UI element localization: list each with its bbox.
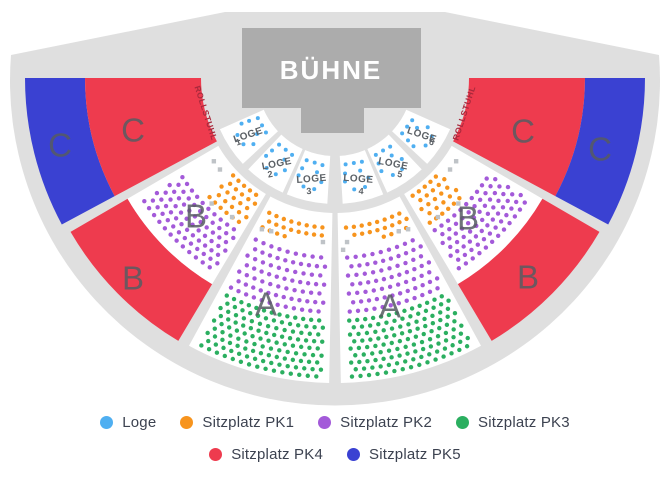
loge-seat-dot[interactable] bbox=[300, 166, 304, 170]
section-label-c-inner-left: C bbox=[121, 112, 145, 149]
legend-item-loge: Loge bbox=[100, 414, 156, 431]
loge-seat-dot[interactable] bbox=[305, 158, 309, 162]
section-label-b-red-right: B bbox=[517, 259, 539, 296]
legend-row-1: Loge Sitzplatz PK1 Sitzplatz PK2 Sitzpla… bbox=[100, 414, 570, 431]
loge-seat-dot[interactable] bbox=[381, 149, 385, 153]
loge-seat-dot[interactable] bbox=[352, 187, 356, 191]
loge-seat-dot[interactable] bbox=[251, 142, 255, 146]
loge-seat-dot[interactable] bbox=[284, 148, 288, 152]
legend: Loge Sitzplatz PK1 Sitzplatz PK2 Sitzpla… bbox=[0, 414, 670, 463]
loge-seat-dot[interactable] bbox=[320, 163, 324, 167]
legend-label: Sitzplatz PK1 bbox=[202, 414, 294, 431]
loge-seat-dot[interactable] bbox=[256, 116, 260, 120]
loge-seat-dot[interactable] bbox=[312, 187, 316, 191]
loge-seat-dot[interactable] bbox=[379, 169, 383, 173]
loge-seat-dot[interactable] bbox=[274, 172, 278, 176]
legend-label: Sitzplatz PK2 bbox=[340, 414, 432, 431]
loge-seat-dot[interactable] bbox=[240, 122, 244, 126]
loge-seat-dot[interactable] bbox=[247, 119, 251, 123]
loge-color-dot bbox=[100, 416, 113, 429]
loge-seat-dot[interactable] bbox=[410, 118, 414, 122]
section-label-b-seats-right: B bbox=[457, 200, 479, 237]
loge-seat-dot[interactable] bbox=[264, 154, 268, 158]
legend-label: Loge bbox=[122, 414, 156, 431]
loge-seat-dot[interactable] bbox=[358, 169, 362, 173]
section-label-c-outer-right: C bbox=[588, 131, 612, 168]
loge-seat-dot[interactable] bbox=[390, 153, 394, 157]
pk5-color-dot bbox=[347, 448, 360, 461]
pk1-color-dot bbox=[180, 416, 193, 429]
loge-number: 3 bbox=[306, 186, 312, 196]
section-label-a-left: A bbox=[255, 286, 277, 323]
loge-seat-dot[interactable] bbox=[283, 168, 287, 172]
loge-seat-dot[interactable] bbox=[374, 153, 378, 157]
loge-seat-dot[interactable] bbox=[313, 161, 317, 165]
pk3-color-dot bbox=[456, 416, 469, 429]
legend-item-pk5: Sitzplatz PK5 bbox=[347, 446, 461, 463]
section-label-a-right: A bbox=[379, 288, 401, 325]
seatmap-page: BÜHNELOGE1LOGE2LOGE3LOGE4LOGE5LOGE6CCBBA… bbox=[0, 0, 670, 490]
pk2-color-dot bbox=[318, 416, 331, 429]
loge-number: 4 bbox=[358, 186, 364, 196]
loge-seat-dot[interactable] bbox=[264, 131, 268, 135]
loge-label: LOGE bbox=[296, 173, 327, 186]
loge-seat-dot[interactable] bbox=[360, 160, 364, 164]
legend-item-pk4: Sitzplatz PK4 bbox=[209, 446, 323, 463]
section-label-c-outer-left: C bbox=[48, 127, 72, 164]
loge-seat-dot[interactable] bbox=[352, 161, 356, 165]
loge-seat-dot[interactable] bbox=[406, 138, 410, 142]
loge-seat-dot[interactable] bbox=[277, 143, 281, 147]
section-label-c-inner-right: C bbox=[511, 113, 535, 150]
legend-item-pk1: Sitzplatz PK1 bbox=[180, 414, 294, 431]
loge-seat-dot[interactable] bbox=[426, 125, 430, 129]
loge-seat-dot[interactable] bbox=[344, 162, 348, 166]
section-label-b-red-left: B bbox=[122, 260, 144, 297]
legend-label: Sitzplatz PK3 bbox=[478, 414, 570, 431]
pk4-color-dot bbox=[209, 448, 222, 461]
section-label-b-seats-left: B bbox=[185, 198, 207, 235]
loge-seat-dot[interactable] bbox=[388, 145, 392, 149]
stage-label: BÜHNE bbox=[280, 55, 382, 85]
legend-label: Sitzplatz PK4 bbox=[231, 446, 323, 463]
loge-label: LOGE bbox=[343, 173, 374, 186]
loge-seat-dot[interactable] bbox=[391, 173, 395, 177]
legend-label: Sitzplatz PK5 bbox=[369, 446, 461, 463]
legend-row-2: Sitzplatz PK4 Sitzplatz PK5 bbox=[209, 446, 461, 463]
loge-seat-dot[interactable] bbox=[400, 131, 404, 135]
legend-item-pk2: Sitzplatz PK2 bbox=[318, 414, 432, 431]
loge-seat-dot[interactable] bbox=[270, 148, 274, 152]
legend-item-pk3: Sitzplatz PK3 bbox=[456, 414, 570, 431]
loge-seat-dot[interactable] bbox=[411, 144, 415, 148]
